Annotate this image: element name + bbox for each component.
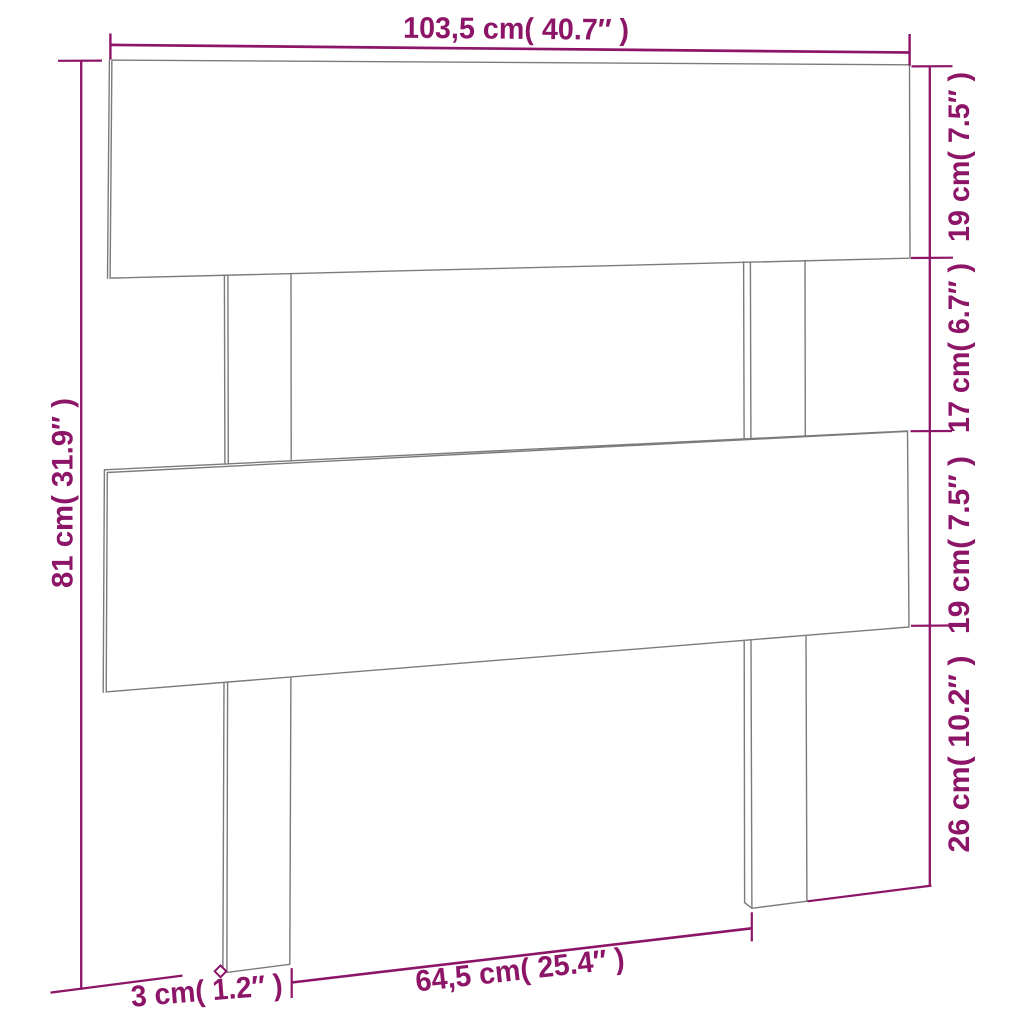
svg-text:26 cm( 10.2″ ): 26 cm( 10.2″ ): [943, 656, 976, 853]
svg-text:103,5 cm( 40.7″ ): 103,5 cm( 40.7″ ): [403, 12, 629, 47]
svg-text:81 cm( 31.9″ ): 81 cm( 31.9″ ): [47, 398, 80, 588]
svg-text:17 cm( 6.7″ ): 17 cm( 6.7″ ): [943, 263, 976, 433]
svg-text:19 cm( 7.5″ ): 19 cm( 7.5″ ): [943, 456, 976, 634]
svg-text:19 cm( 7.5″ ): 19 cm( 7.5″ ): [943, 72, 976, 242]
